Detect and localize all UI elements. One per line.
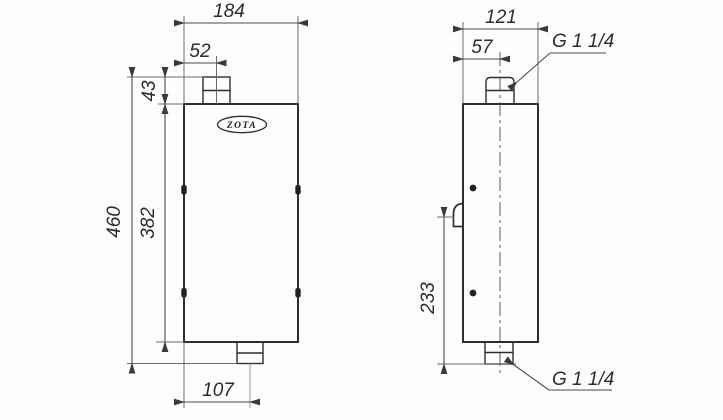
side-view: 121 57 233 G 1 1/4 G 1 1/4 <box>418 7 614 390</box>
dim-label-overall-height: 460 <box>104 206 125 238</box>
technical-drawing-canvas: ZOTA 184 52 43 <box>0 0 723 420</box>
clip-tab-right-lower <box>295 288 300 298</box>
side-extension-lines <box>437 22 538 364</box>
dim-top-pipe-offset: 52 <box>184 41 217 63</box>
dim-front-width: 184 <box>184 1 298 23</box>
front-body-outline <box>184 104 298 342</box>
side-bottom-pipe <box>485 342 513 364</box>
callout-label-top-thread: G 1 1/4 <box>552 31 614 52</box>
dim-label-body-height: 382 <box>138 207 159 239</box>
zota-logo: ZOTA <box>218 116 267 132</box>
front-view: ZOTA 184 52 43 <box>104 1 301 408</box>
dim-label-top-pipe-height: 43 <box>139 80 160 102</box>
front-bottom-pipe <box>237 342 263 364</box>
dim-label-front-width: 184 <box>213 1 245 22</box>
boiler-dimension-drawing: ZOTA 184 52 43 <box>0 0 723 420</box>
zota-logo-text: ZOTA <box>226 121 257 131</box>
dim-label-side-pipe-offset: 57 <box>471 37 494 58</box>
callout-bottom-thread: G 1 1/4 <box>514 365 614 390</box>
dim-side-width: 121 <box>463 7 538 29</box>
dim-top-pipe-height: 43 <box>139 77 165 104</box>
dim-label-bracket-height: 233 <box>418 282 439 315</box>
clip-tab-right-upper <box>295 185 300 195</box>
dim-side-pipe-offset: 57 <box>463 37 500 59</box>
dim-overall-height: 460 <box>104 77 132 364</box>
dim-bottom-pipe-offset: 107 <box>184 380 250 402</box>
mount-hook-bracket <box>454 204 464 227</box>
dim-label-top-pipe-offset: 52 <box>189 41 211 62</box>
dim-bracket-height: 233 <box>418 217 444 364</box>
dim-label-side-width: 121 <box>485 7 517 28</box>
callout-label-bottom-thread: G 1 1/4 <box>552 369 614 390</box>
screw-head-upper <box>470 185 477 192</box>
screw-head-lower <box>470 290 477 297</box>
clip-tab-left-lower <box>181 288 186 298</box>
dim-label-bottom-pipe-offset: 107 <box>202 380 235 401</box>
dim-body-height: 382 <box>138 104 165 342</box>
clip-tab-left-upper <box>181 185 186 195</box>
callout-top-thread: G 1 1/4 <box>517 31 614 82</box>
